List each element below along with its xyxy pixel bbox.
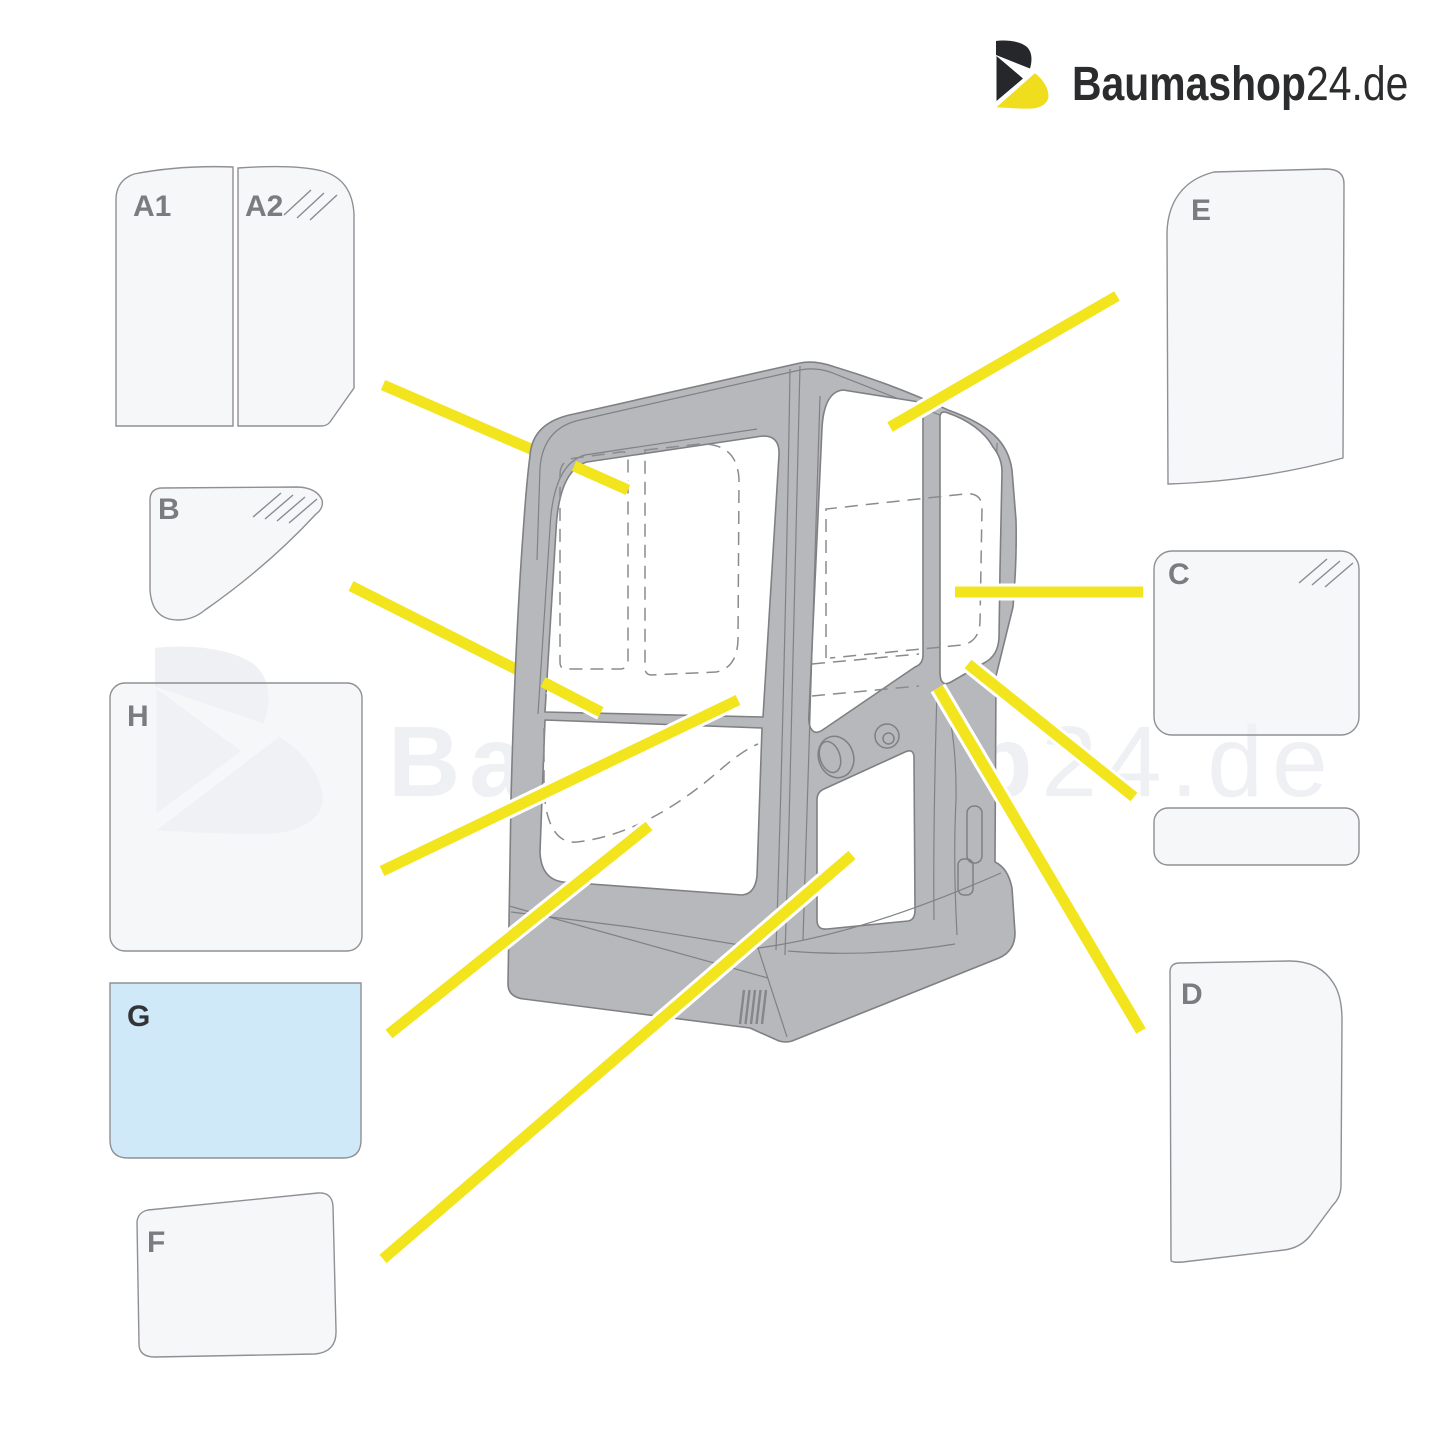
svg-text:G: G [127,1000,150,1033]
svg-text:A2: A2 [245,190,283,223]
svg-text:F: F [147,1226,165,1259]
svg-text:B: B [158,493,180,526]
svg-text:Baumashop24.de: Baumashop24.de [1072,58,1408,111]
svg-text:D: D [1181,978,1203,1011]
svg-text:H: H [127,700,149,733]
svg-text:A1: A1 [133,190,171,223]
svg-text:C: C [1168,558,1190,591]
svg-text:E: E [1191,194,1211,227]
